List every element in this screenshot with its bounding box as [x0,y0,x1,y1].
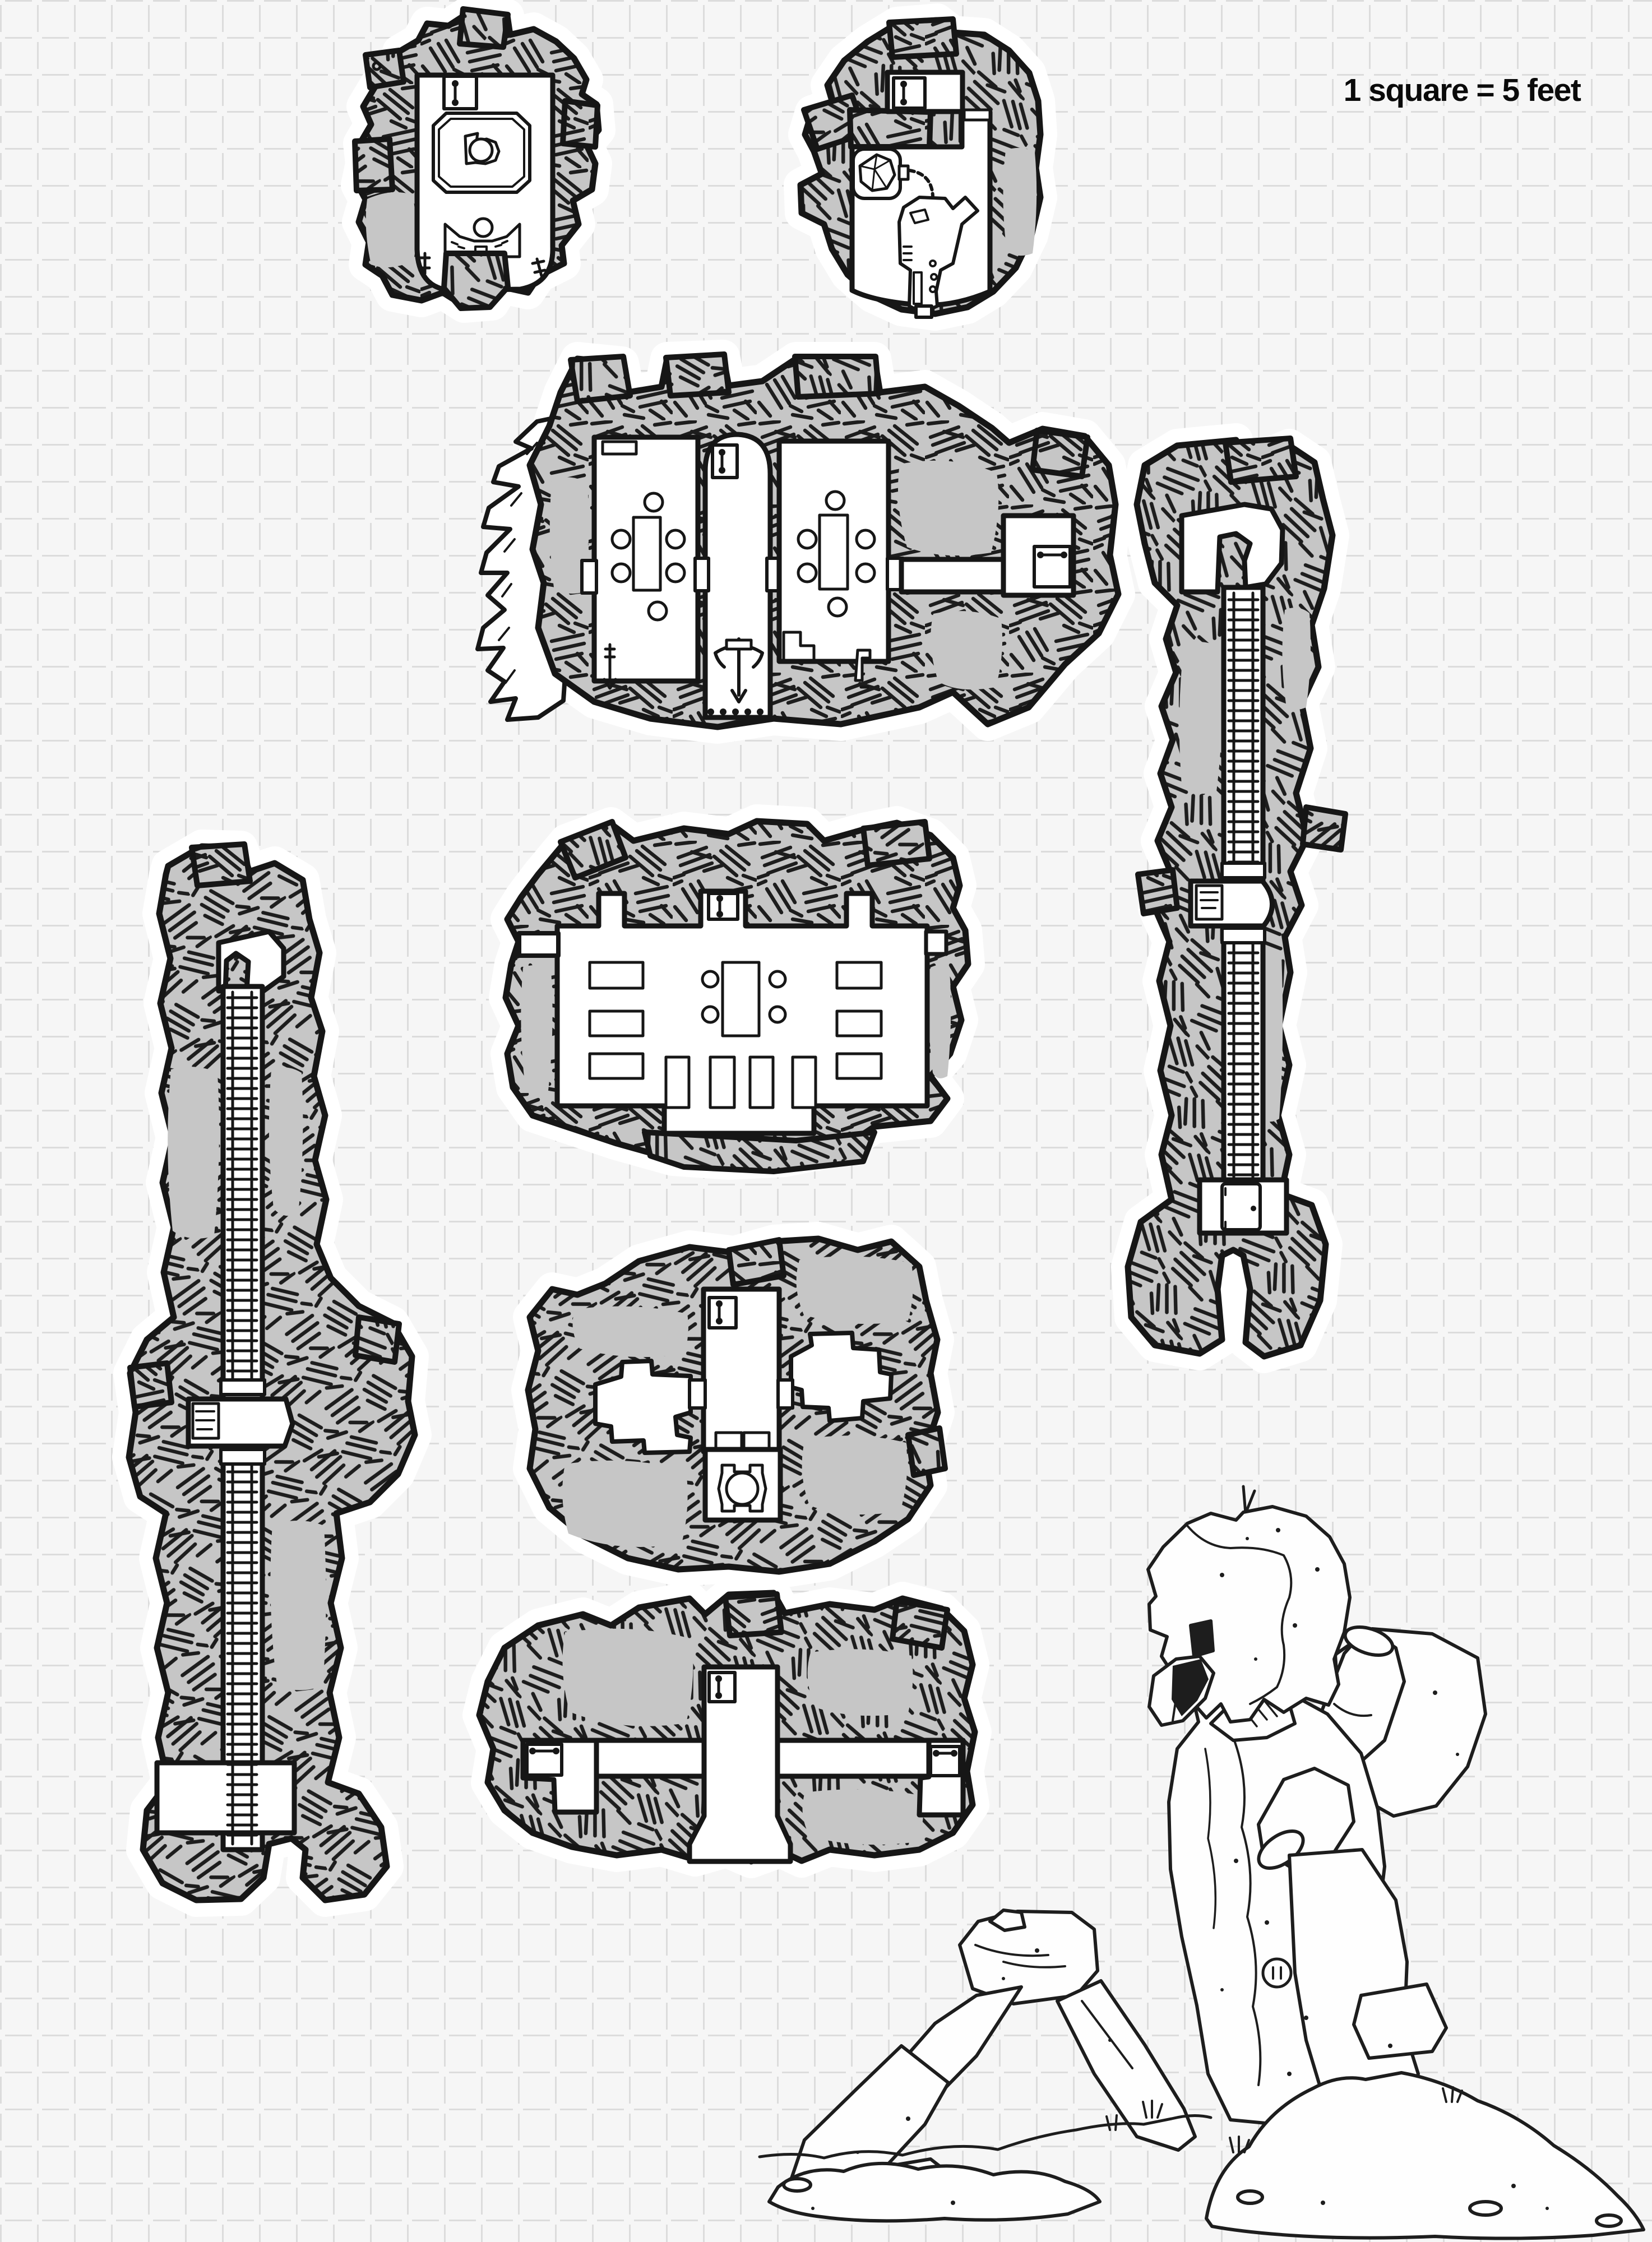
svg-text:1 square = 5 feet: 1 square = 5 feet [1344,72,1581,108]
